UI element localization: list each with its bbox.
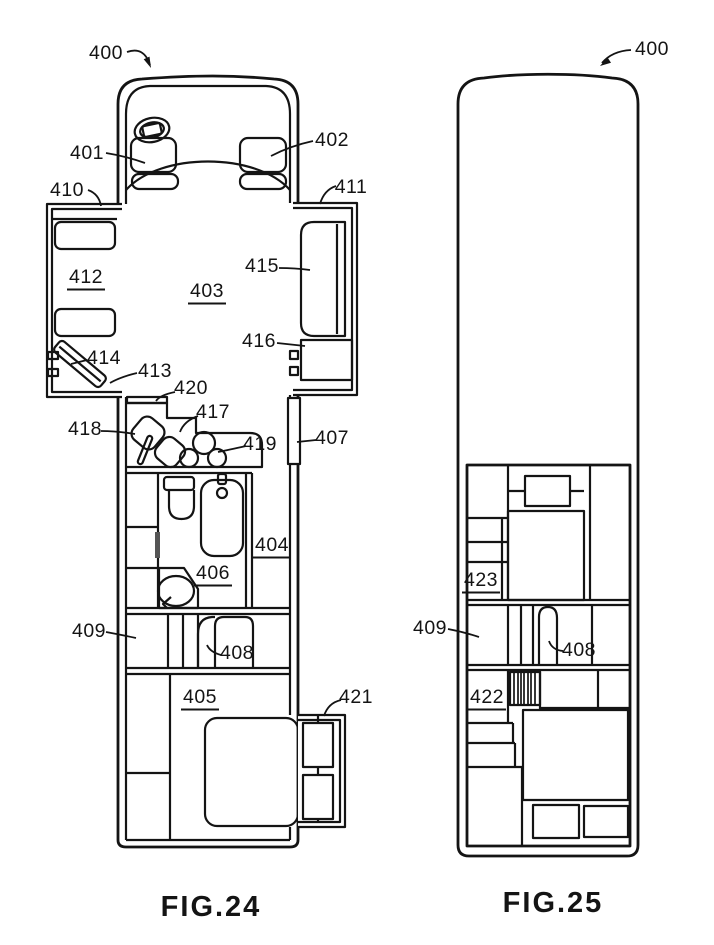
fig25-drawing: 400423409408422 FIG.25 [413,38,669,919]
steering-wheel [132,115,171,146]
kitchen [126,397,262,470]
ref-label-417: 417 [196,401,230,423]
entry-door-407 [288,398,300,464]
pillow [584,806,628,837]
ref-label-415: 415 [245,255,279,277]
leader-line-411 [320,186,336,204]
lower-deck-box [467,465,630,846]
ref-label-416: 416 [242,330,276,352]
leader-line-419 [218,446,246,452]
pillow [533,805,579,838]
ref-label-408: 408 [562,639,596,661]
toilet [164,477,194,519]
ref-label-421: 421 [339,686,373,708]
ref-label-422: 422 [470,686,504,708]
kitchen-counter-417 [126,403,262,467]
ref-label-406: 406 [196,562,230,584]
patent-sheet: 4004014024104114124034154164144134204174… [0,0,714,945]
ref-label-407: 407 [315,427,349,449]
ref-label-404: 404 [255,534,289,556]
bed [205,718,298,826]
ref-label-402: 402 [315,129,349,151]
bed [523,710,628,800]
headboard [525,476,570,506]
slideout-bedroom-421 [298,715,345,827]
ref-label-423: 423 [464,569,498,591]
caption-fig25: FIG.25 [503,887,604,919]
ref-label-400: 400 [635,38,669,60]
stove-burners-419 [180,432,226,467]
arrowhead-400 [144,57,151,68]
leader-line-400 [127,51,150,65]
patent-drawing: 4004014024104114124034154164144134204174… [0,0,714,945]
ref-label-414: 414 [87,347,121,369]
ref-label-413: 413 [138,360,172,382]
lower-stairs-section [467,600,630,670]
ref-label-411: 411 [335,176,368,198]
ref-label-405: 405 [183,686,217,708]
slideout-right [293,203,357,395]
leader-line-409 [106,632,136,638]
driver-seat [131,138,178,189]
stairs-section [126,614,290,674]
ref-label-401: 401 [70,142,104,164]
ref-label-412: 412 [69,266,103,288]
ref-label-409: 409 [413,617,447,639]
leader-line-402 [271,141,313,156]
bed [508,511,584,600]
ref-label-403: 403 [190,280,224,302]
ref-label-400: 400 [89,42,123,64]
ref-label-419: 419 [243,433,277,455]
ref-label-420: 420 [174,377,208,399]
ref-label-410: 410 [50,179,84,201]
sink-418 [128,413,188,470]
bathtub [201,474,243,556]
ref-label-418: 418 [68,418,102,440]
shower [158,568,198,608]
ref-label-409: 409 [72,620,106,642]
hatched-steps [510,672,540,705]
caption-fig24: FIG.24 [161,891,262,923]
ref-label-408: 408 [220,642,254,664]
fig24-drawing: 4004014024104114124034154164144134204174… [47,42,373,923]
wardrobe-door-marker [155,532,160,558]
leader-line-409 [448,629,479,637]
